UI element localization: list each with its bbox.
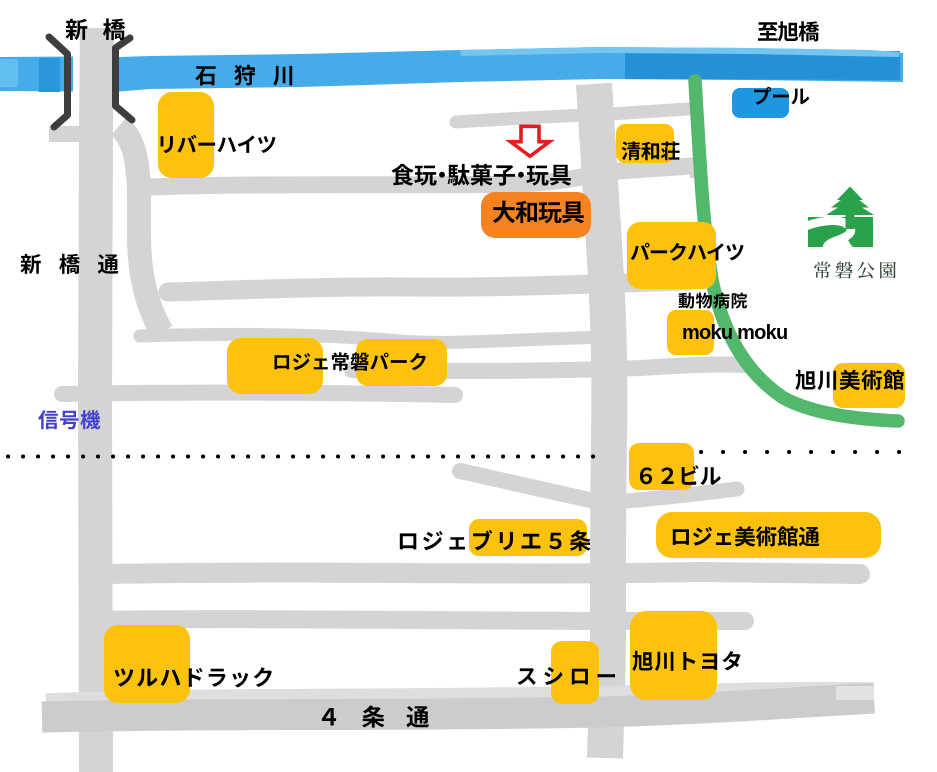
svg-text:moku moku: moku moku bbox=[682, 322, 788, 344]
